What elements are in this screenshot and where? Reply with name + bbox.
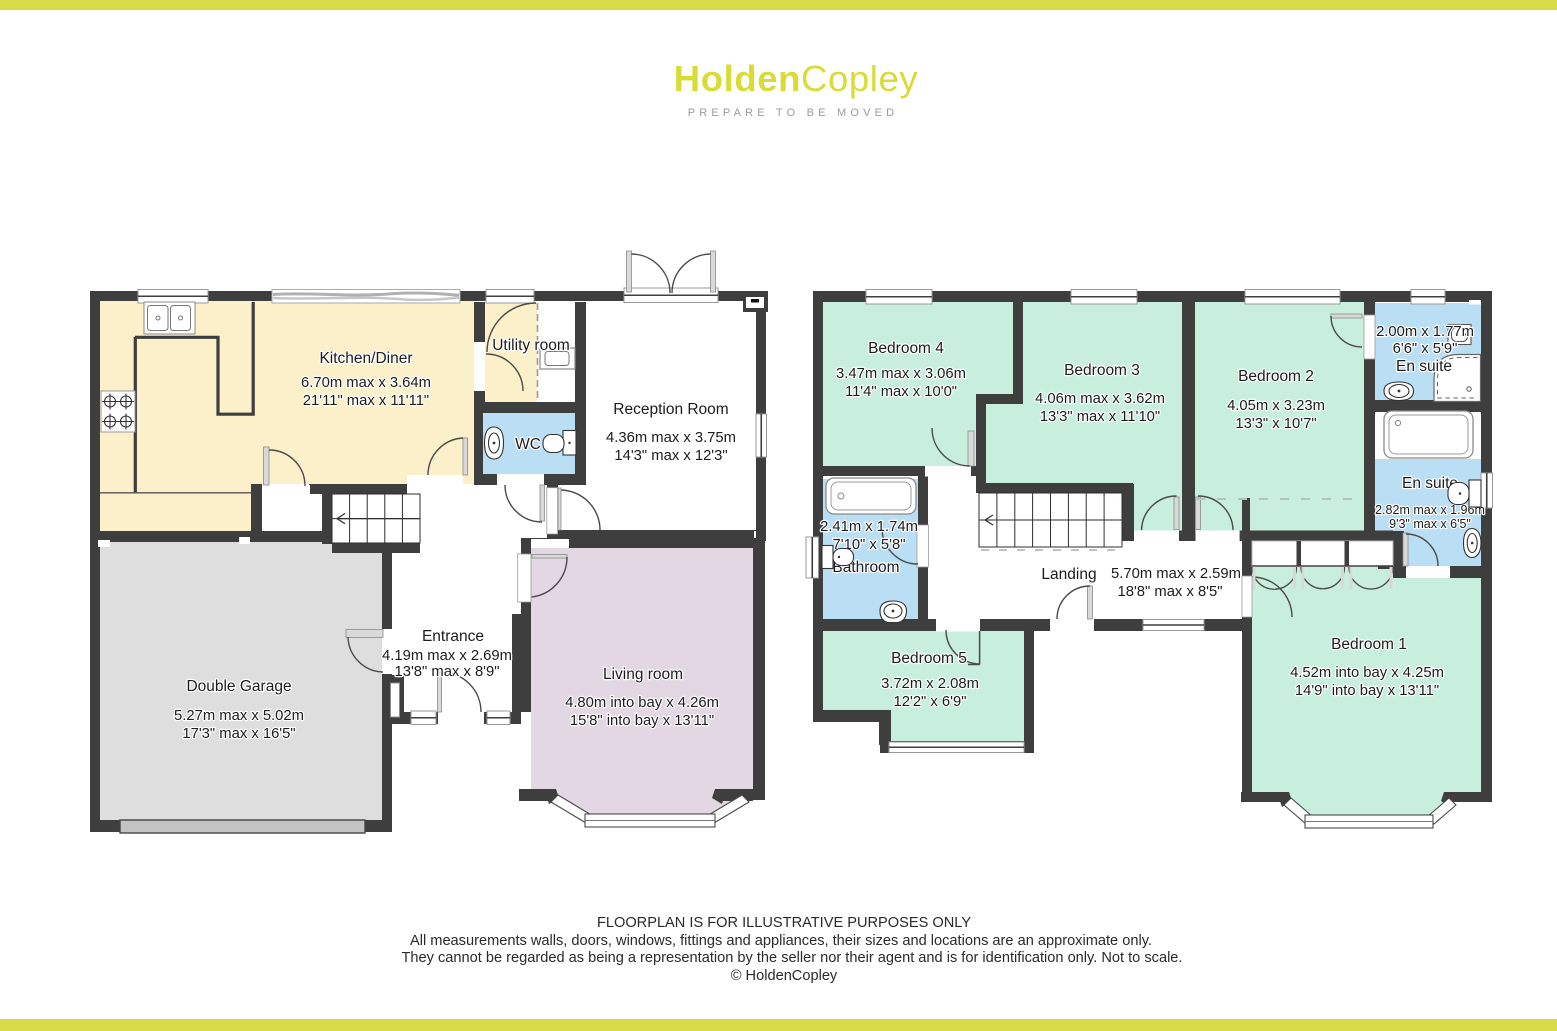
svg-text:2.00m x 1.77m: 2.00m x 1.77m	[1376, 324, 1474, 340]
svg-text:21'11" max x 11'11": 21'11" max x 11'11"	[303, 393, 429, 409]
svg-text:Landing: Landing	[1041, 566, 1096, 583]
svg-text:2.41m x 1.74m: 2.41m x 1.74m	[820, 519, 918, 535]
svg-text:Bedroom 1: Bedroom 1	[1331, 636, 1407, 653]
svg-text:15'8" into bay x 13'11": 15'8" into bay x 13'11"	[570, 713, 714, 729]
svg-text:6.70m max x 3.64m: 6.70m max x 3.64m	[301, 375, 431, 391]
svg-text:4.80m into bay x 4.26m: 4.80m into bay x 4.26m	[565, 695, 719, 711]
svg-text:HoldenCopley: HoldenCopley	[674, 58, 919, 99]
svg-text:11'4" max x 10'0": 11'4" max x 10'0"	[845, 384, 957, 400]
svg-text:Bedroom 5: Bedroom 5	[891, 650, 967, 667]
svg-text:Entrance: Entrance	[422, 628, 484, 645]
svg-text:14'3" max x 12'3": 14'3" max x 12'3"	[614, 448, 727, 464]
svg-text:4.06m max x 3.62m: 4.06m max x 3.62m	[1035, 391, 1165, 407]
svg-text:Bedroom 2: Bedroom 2	[1238, 368, 1314, 385]
svg-text:PREPARE TO BE MOVED: PREPARE TO BE MOVED	[688, 107, 899, 119]
svg-text:17'3" max x 16'5": 17'3" max x 16'5"	[182, 726, 295, 742]
svg-text:5.27m max x 5.02m: 5.27m max x 5.02m	[174, 708, 304, 724]
svg-text:4.19m max x 2.69m: 4.19m max x 2.69m	[382, 648, 512, 664]
svg-text:6'6" x 5'9": 6'6" x 5'9"	[1393, 341, 1458, 357]
svg-text:3.72m x 2.08m: 3.72m x 2.08m	[881, 676, 979, 692]
svg-text:12'2" x 6'9": 12'2" x 6'9"	[894, 694, 967, 710]
svg-text:FLOORPLAN IS FOR ILLUSTRATIVE: FLOORPLAN IS FOR ILLUSTRATIVE PURPOSES O…	[597, 915, 971, 931]
svg-text:3.47m max x 3.06m: 3.47m max x 3.06m	[836, 366, 966, 382]
svg-text:4.05m x 3.23m: 4.05m x 3.23m	[1227, 398, 1325, 414]
svg-text:Bedroom 3: Bedroom 3	[1064, 362, 1140, 379]
svg-text:13'3" max x 11'10": 13'3" max x 11'10"	[1040, 409, 1160, 425]
svg-text:En suite: En suite	[1396, 358, 1452, 375]
svg-text:Reception Room: Reception Room	[613, 401, 728, 418]
svg-text:9'3" max x 6'5": 9'3" max x 6'5"	[1389, 517, 1471, 531]
svg-text:© HoldenCopley: © HoldenCopley	[731, 968, 838, 984]
svg-text:4.36m max x 3.75m: 4.36m max x 3.75m	[606, 430, 736, 446]
svg-text:Bedroom 4: Bedroom 4	[868, 340, 944, 357]
svg-text:All measurements walls, doors,: All measurements walls, doors, windows, …	[410, 933, 1152, 949]
svg-text:Kitchen/Diner: Kitchen/Diner	[319, 350, 412, 367]
svg-text:2.82m max x 1.96m: 2.82m max x 1.96m	[1375, 503, 1485, 517]
svg-text:13'3" x 10'7": 13'3" x 10'7"	[1235, 416, 1316, 432]
svg-text:4.52m into bay x 4.25m: 4.52m into bay x 4.25m	[1290, 665, 1444, 681]
svg-text:13'8" max x 8'9": 13'8" max x 8'9"	[395, 664, 500, 680]
svg-text:18'8" max x 8'5": 18'8" max x 8'5"	[1118, 584, 1223, 600]
svg-text:Double Garage: Double Garage	[186, 678, 291, 695]
svg-text:They cannot be regarded as bei: They cannot be regarded as being a repre…	[402, 950, 1183, 966]
svg-text:14'9" into bay x 13'11": 14'9" into bay x 13'11"	[1295, 683, 1439, 699]
svg-text:WC: WC	[515, 436, 541, 453]
svg-text:Living room: Living room	[603, 666, 683, 683]
svg-text:5.70m max x 2.59m: 5.70m max x 2.59m	[1111, 566, 1241, 582]
svg-text:Utility room: Utility room	[492, 337, 570, 354]
